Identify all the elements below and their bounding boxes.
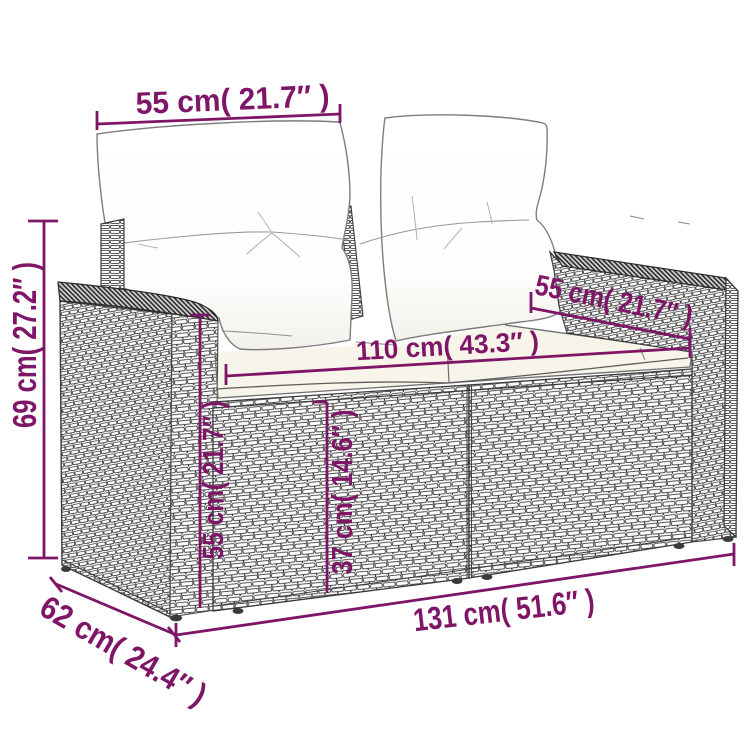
svg-text:55 cm( 21.7″ ): 55 cm( 21.7″ ) xyxy=(198,401,230,560)
svg-text:69 cm( 27.2″ ): 69 cm( 27.2″ ) xyxy=(6,262,43,428)
svg-text:37 cm( 14.6″ ): 37 cm( 14.6″ ) xyxy=(327,410,359,575)
